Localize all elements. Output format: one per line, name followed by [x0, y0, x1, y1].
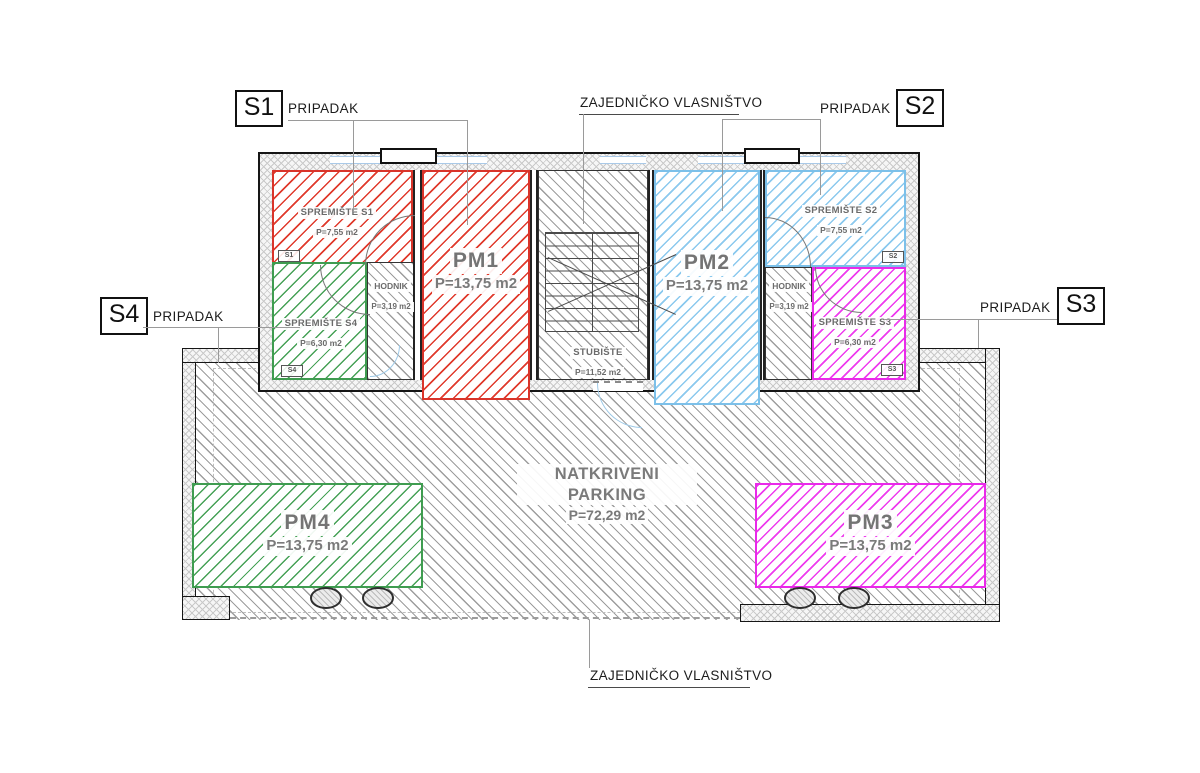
bush-2: [362, 587, 394, 609]
leader-common-top-drop: [583, 114, 584, 224]
tag-s4: S4: [281, 365, 303, 377]
common-bottom-underline: [588, 687, 750, 688]
parking-wall-right: [985, 348, 1000, 620]
pripadak-label-s1: PRIPADAK: [288, 101, 358, 116]
pripadak-label-s3: PRIPADAK: [980, 300, 1050, 315]
label-pm3: PM3 P=13,75 m2: [755, 510, 986, 556]
window-4: [698, 156, 744, 164]
unit-box-s3: S3: [1057, 287, 1105, 325]
staircase-treads: [545, 232, 639, 332]
parking-wall-left-foot: [182, 596, 230, 620]
unit-box-s2: S2: [896, 89, 944, 127]
label-spremiste-s4: SPREMIŠTE S4 P=6,30 m2: [273, 312, 369, 352]
bush-4: [838, 587, 870, 609]
window-3: [600, 156, 646, 164]
label-spremiste-s3: SPREMIŠTE S3 P=6,30 m2: [803, 311, 907, 351]
leader-s2-drop-1: [722, 119, 723, 211]
window-2: [437, 156, 487, 164]
parking-wall-top-left: [182, 348, 260, 363]
label-stubiste: STUBIŠTE P=11,52 m2: [552, 341, 644, 381]
unit-box-s1: S1: [235, 90, 283, 127]
wall-pier-right: [744, 148, 800, 164]
leader-s2-drop-2: [820, 119, 821, 195]
pripadak-label-s4: PRIPADAK: [153, 309, 223, 324]
label-pm1: PM1 P=13,75 m2: [422, 248, 530, 294]
bush-3: [784, 587, 816, 609]
label-hodnik-right: HODNIK P=3,19 m2: [759, 275, 819, 315]
tag-s1: S1: [278, 250, 300, 262]
window-5: [800, 156, 846, 164]
label-pm4: PM4 P=13,75 m2: [192, 510, 423, 556]
label-hodnik-left: HODNIK P=3,19 m2: [361, 275, 421, 315]
label-natkriveni-parking: NATKRIVENI PARKING P=72,29 m2: [517, 464, 697, 526]
leader-s3-horizontal: [885, 319, 1057, 320]
label-spremiste-s2: SPREMIŠTE S2 P=7,55 m2: [781, 199, 901, 239]
leader-s3-drop: [978, 319, 979, 348]
unit-box-s4: S4: [100, 297, 148, 335]
leader-s2-horizontal: [722, 119, 820, 120]
leader-s1-drop-2: [467, 120, 468, 225]
bush-1: [310, 587, 342, 609]
leader-common-bottom-rise: [589, 620, 590, 668]
leader-s4-drop: [218, 327, 219, 363]
label-pm2: PM2 P=13,75 m2: [654, 250, 760, 296]
leader-s1-horizontal: [288, 120, 468, 121]
leader-s4-horizontal: [143, 327, 300, 328]
label-spremiste-s1: SPREMIŠTE S1 P=7,55 m2: [277, 201, 397, 241]
staircase-center-line: [592, 233, 593, 331]
wall-pier-left: [380, 148, 437, 164]
pripadak-label-s2: PRIPADAK: [820, 101, 890, 116]
window-1: [330, 156, 382, 164]
floor-plan-canvas: S1 S4 S2 S3 SPREMIŠTE S1 P=7,55 m2 SPREM…: [0, 0, 1200, 773]
tag-s3: S3: [881, 364, 903, 376]
parking-open-edge-dashed: [230, 617, 740, 619]
parking-wall-bottom-right: [740, 604, 1000, 622]
tag-s2: S2: [882, 251, 904, 263]
common-bottom-label: ZAJEDNIČKO VLASNIŠTVO: [590, 668, 772, 683]
partition-wall-2: [530, 170, 538, 380]
common-top-underline: [579, 114, 739, 115]
common-top-label: ZAJEDNIČKO VLASNIŠTVO: [580, 95, 762, 110]
leader-s1-drop-1: [353, 120, 354, 212]
